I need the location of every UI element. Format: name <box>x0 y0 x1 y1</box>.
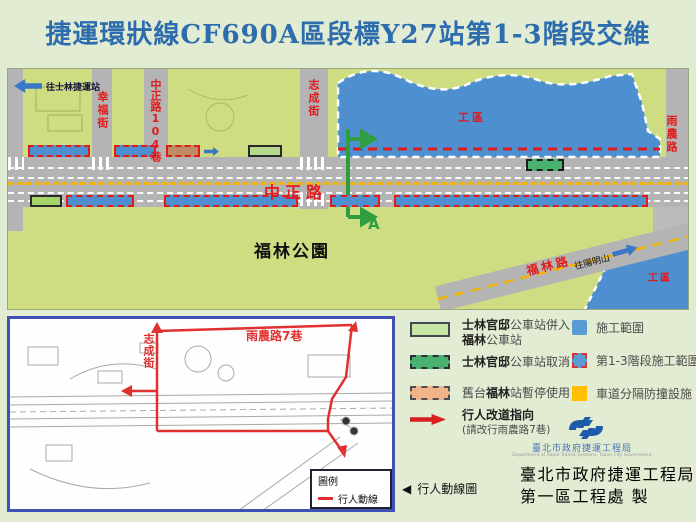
zhongzheng-road-label: 中正路 <box>264 179 327 203</box>
inset-legend-item: 行人動線 <box>338 491 378 506</box>
phase-work-strip <box>330 195 380 207</box>
org-line2: 第一區工程處 製 <box>520 486 695 508</box>
legend-text: 公車站 <box>486 333 522 347</box>
organization-credit: 臺北市政府捷運工程局 第一區工程處 製 <box>520 464 695 508</box>
inset-legend-box: 圖例 行人動線 <box>310 469 392 509</box>
suspended-fulin-stop <box>166 145 200 157</box>
page-title: 捷運環狀線CF690A區段標Y27站第1-3階段交維 <box>0 14 696 51</box>
phase-work-strip <box>66 195 134 207</box>
legend-work-area-label: 施工範圍 <box>596 321 644 336</box>
work-zone-label: 工區 <box>458 109 486 125</box>
cancelled-stop-swatch <box>410 355 450 369</box>
yunong-road-label: 雨農路 <box>663 115 679 154</box>
main-map: 往士林捷運站 幸福街 中正路104巷 志成街 雨農路 工區 中正路 福林公園 A… <box>7 68 689 310</box>
zhongzheng-lane104-label: 中正路104巷 <box>147 79 163 162</box>
inset-zhicheng-label: 志成街 <box>140 333 156 369</box>
phase-work-strip <box>394 195 648 207</box>
left-triangle-icon: ◀ <box>402 482 411 496</box>
logo-english-text: Department of Rapid Transit Systems, Tai… <box>504 453 660 458</box>
legend-merged-stop-label: 士林官邸公車站併入 福林公車站 <box>462 318 570 348</box>
legend-text: 舊台 <box>462 386 486 400</box>
cancelled-bus-stop <box>526 159 564 171</box>
barrier-swatch <box>572 386 587 401</box>
org-line1: 臺北市政府捷運工程局 <box>520 464 695 486</box>
section-a-label: A <box>368 215 380 233</box>
legend-text: 公車站併入 <box>510 318 570 332</box>
map-overlay-shapes <box>8 69 689 310</box>
pedestrian-route-inset-map: 志成街 雨農路7巷 圖例 行人動線 <box>7 316 395 512</box>
phase-work-strip <box>28 145 90 157</box>
inset-caption-text: 行人動線圖 <box>417 480 477 497</box>
legend-text: 士林官邸 <box>462 318 510 332</box>
pedestrian-route-line <box>130 325 352 451</box>
drts-logo-icon <box>563 416 609 440</box>
inset-yunong-lane7-label: 雨農路7巷 <box>246 327 302 344</box>
legend-cancelled-stop-label: 士林官邸公車站取消 <box>462 355 570 370</box>
legend-suspended-stop-label: 舊台福林站暫停使用 <box>462 386 570 401</box>
legend-phase-work-area-label: 第1-3階段施工範圍 <box>596 354 696 369</box>
inset-legend-title: 圖例 <box>318 473 384 488</box>
legend-text: 福林 <box>462 333 486 347</box>
zhicheng-street-label: 志成街 <box>305 79 321 118</box>
red-arrow-icon <box>410 414 446 425</box>
legend-barrier-label: 車道分隔防撞設施 <box>596 387 692 402</box>
park-structure <box>48 115 82 131</box>
legend-subtext: (請改行雨農路7巷) <box>462 423 550 438</box>
phase-work-area-swatch <box>572 353 587 368</box>
legend-pedestrian-diversion-label: 行人改道指向 (請改行雨農路7巷) <box>462 408 550 438</box>
to-shilin-label: 往士林捷運站 <box>46 80 100 93</box>
merged-bus-stop <box>248 145 282 157</box>
legend-text: 站暫停使用 <box>510 386 570 400</box>
legend-text: 福林 <box>486 386 510 400</box>
traffic-diversion-poster: 捷運環狀線CF690A區段標Y27站第1-3階段交維 <box>0 0 696 522</box>
inset-caption: ◀ 行人動線圖 <box>402 480 477 497</box>
work-area-swatch <box>572 320 587 335</box>
route-line-swatch <box>318 497 333 500</box>
legend-text: 公車站取消 <box>510 355 570 369</box>
suspended-stop-swatch <box>410 386 450 400</box>
merged-stop-swatch <box>410 322 450 337</box>
legend-text: 士林官邸 <box>462 355 510 369</box>
legend-text: 行人改道指向 <box>462 408 550 423</box>
fulin-park-label: 福林公園 <box>254 237 330 262</box>
park-structure <box>206 103 234 131</box>
park-path <box>188 89 248 100</box>
xingfu-street-label: 幸福街 <box>94 91 110 130</box>
construction-zone-main <box>338 71 660 157</box>
work-zone-corner-label: 工區 <box>648 269 672 284</box>
merged-bus-stop-south <box>30 195 62 207</box>
